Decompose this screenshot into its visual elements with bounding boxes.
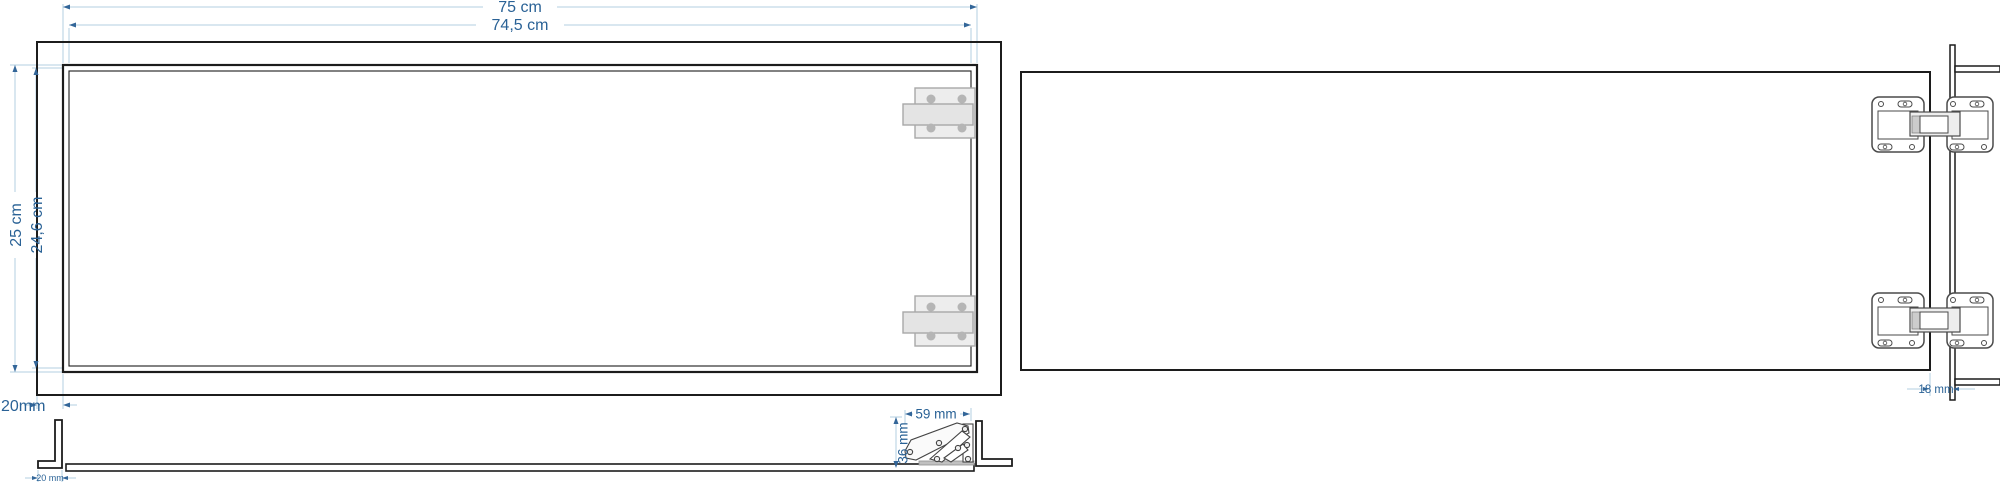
dim-label-width-outer: 75 cm	[498, 0, 542, 16]
panel-section	[66, 464, 974, 471]
frame-angle-right	[976, 421, 1012, 466]
hinge-plate-bottom	[903, 296, 975, 346]
frame-angle-left	[38, 420, 62, 468]
dim-label-hinge-height: 36 mm	[896, 422, 911, 463]
dim-label-height-inner: 24,6 cm	[29, 197, 46, 254]
back-view	[1021, 45, 2000, 400]
hinge-back-top	[1872, 97, 1993, 152]
hinge-cross-section	[905, 423, 974, 465]
dim-label-width-inner: 74,5 cm	[492, 17, 549, 34]
technical-drawing-svg: 75 cm 74,5 cm 25 cm 24,6 cm 20mm 20 mm 5…	[0, 0, 2000, 485]
dim-label-angle-foot: 20 mm	[36, 473, 64, 483]
dimension-arrows-layer	[13, 5, 1960, 481]
hinge-plate-top	[903, 88, 975, 138]
dim-label-hinge-length: 59 mm	[915, 407, 956, 422]
dim-label-edge-gap: 18 mm	[1918, 384, 1953, 396]
dim-label-frame-offset: 20mm	[1, 398, 45, 415]
frame-flange-top	[1955, 66, 2000, 72]
frame-flange-bottom	[1955, 379, 2000, 385]
panel-outline-inner	[69, 71, 971, 366]
hinge-back-bottom	[1872, 293, 1993, 348]
front-view	[37, 42, 1001, 395]
dimension-lines-layer	[10, 4, 1975, 482]
frame-opening-outline	[37, 42, 1001, 395]
panel-outline-outer	[63, 65, 977, 372]
dim-label-height-outer: 25 cm	[8, 203, 25, 247]
section-view	[38, 420, 1012, 471]
technical-drawing-page: 75 cm 74,5 cm 25 cm 24,6 cm 20mm 20 mm 5…	[0, 0, 2000, 485]
panel-back-outline	[1021, 72, 1930, 370]
